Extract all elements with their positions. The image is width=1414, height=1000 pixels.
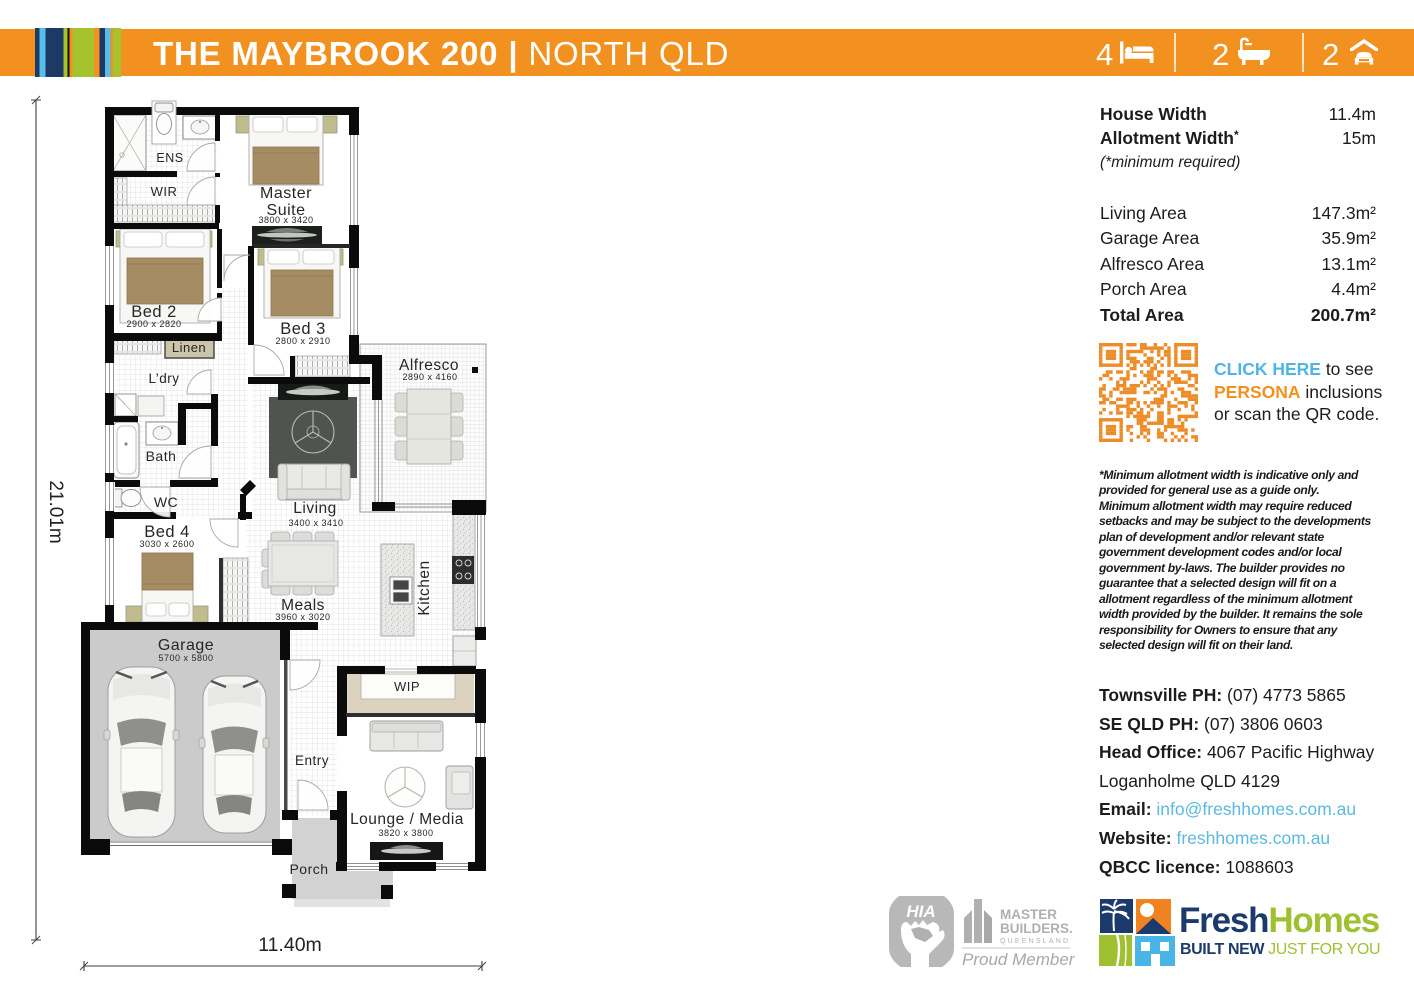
svg-text:2800 x 2910: 2800 x 2910 (275, 336, 330, 346)
svg-text:L’dry: L’dry (148, 371, 179, 386)
svg-text:3030 x 2600: 3030 x 2600 (139, 539, 194, 549)
svg-text:Proud Member: Proud Member (962, 950, 1076, 968)
svg-text:Master: Master (260, 185, 312, 202)
svg-text:Linen: Linen (172, 340, 206, 355)
svg-text:FreshHomes: FreshHomes (1179, 901, 1380, 940)
svg-text:11.40m: 11.40m (258, 934, 322, 956)
svg-text:Kitchen: Kitchen (416, 560, 433, 615)
svg-text:ENS: ENS (156, 151, 183, 165)
svg-text:Lounge / Media: Lounge / Media (350, 811, 464, 828)
svg-text:WIP: WIP (394, 679, 420, 694)
svg-text:Garage: Garage (158, 637, 214, 654)
svg-text:2890 x 4160: 2890 x 4160 (402, 372, 457, 382)
svg-text:3400 x 3410: 3400 x 3410 (288, 518, 343, 528)
svg-text:Entry: Entry (295, 753, 329, 768)
svg-text:BUILDERS.: BUILDERS. (1000, 921, 1073, 936)
svg-text:Bath: Bath (146, 448, 177, 464)
svg-text:HIA: HIA (906, 902, 935, 921)
svg-text:QUEENSLAND: QUEENSLAND (1000, 938, 1070, 945)
svg-text:2900 x 2820: 2900 x 2820 (126, 319, 181, 329)
svg-text:3960 x 3020: 3960 x 3020 (275, 612, 330, 622)
svg-text:BUILT NEW JUST FOR YOU: BUILT NEW JUST FOR YOU (1180, 941, 1380, 958)
svg-text:Porch: Porch (289, 861, 328, 877)
svg-text:MASTER: MASTER (1000, 907, 1057, 922)
svg-text:21.01m: 21.01m (45, 480, 66, 543)
svg-text:3800 x 3420: 3800 x 3420 (258, 215, 313, 225)
svg-text:WC: WC (154, 494, 178, 510)
svg-text:WIR: WIR (151, 184, 178, 199)
svg-text:Living: Living (293, 500, 337, 517)
svg-text:3820 x 3800: 3820 x 3800 (378, 828, 433, 838)
svg-text:5700 x 5800: 5700 x 5800 (158, 653, 213, 663)
